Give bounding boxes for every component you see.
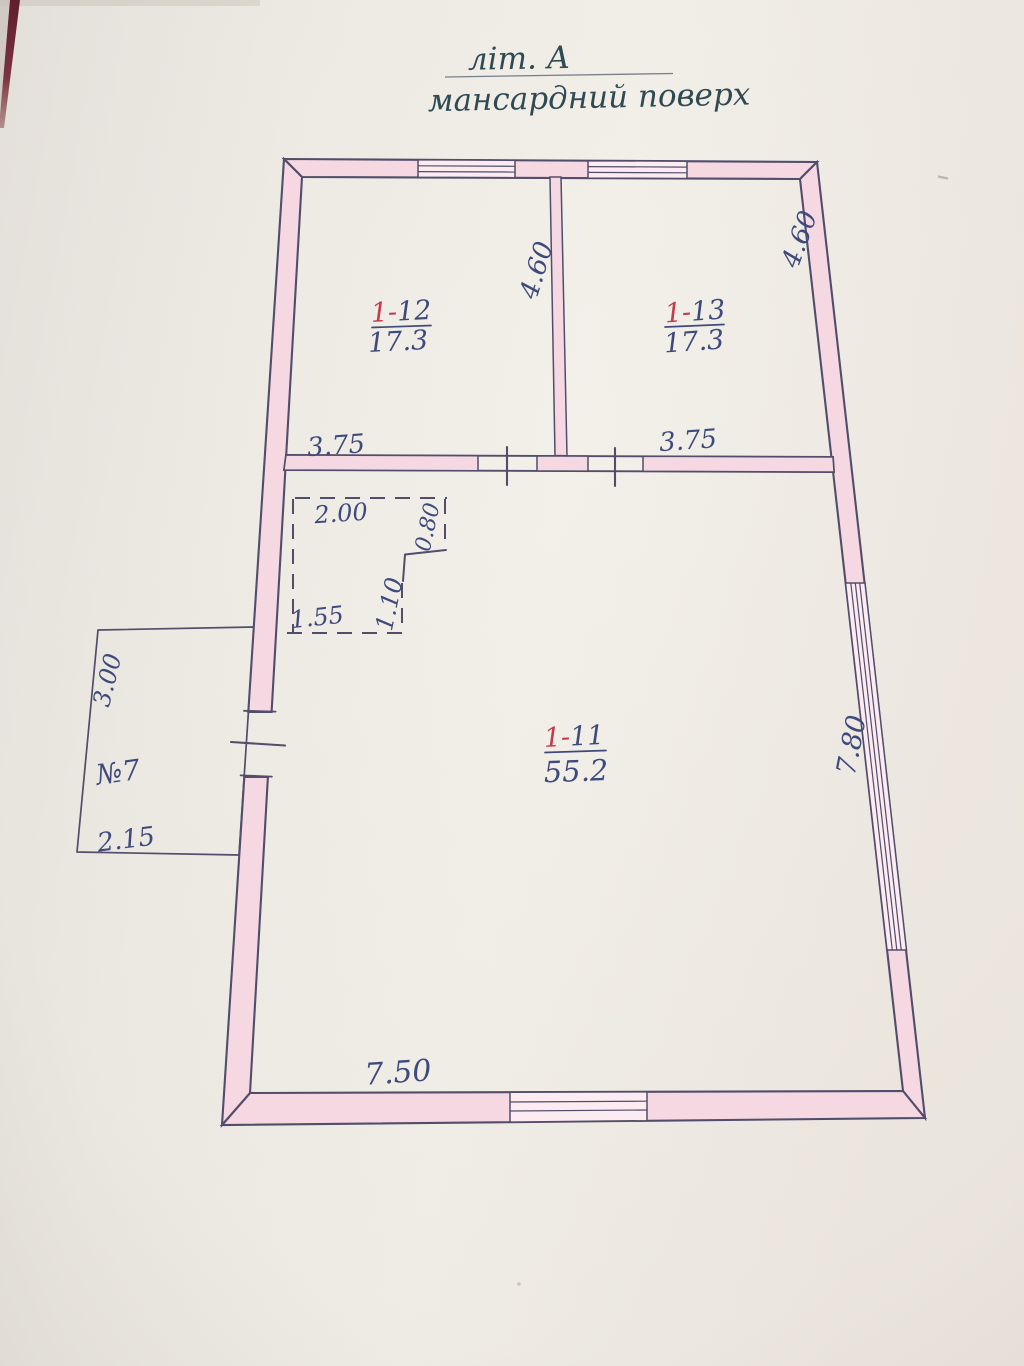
window-glass-line [510,1101,647,1102]
window-top-left [418,160,515,178]
room-number-prefix: 1- [664,297,692,330]
room-number: 12 [396,295,432,328]
opening-jamb-line [241,775,272,776]
room-1-11-area: 55.2 [543,753,609,789]
window-frame [418,160,515,178]
dim-room12-width: 3.75 [306,429,366,463]
top-exterior-wall [284,159,817,179]
window-bottom-wall [510,1092,647,1122]
window-glass-line [588,167,687,168]
window-frame [588,161,687,179]
opening-jamb-line [244,711,276,712]
photo-top-edge-shadow [0,0,260,6]
room-number-prefix: 1- [370,297,398,329]
room-1-11-number: 1-11 [543,720,605,754]
paper-speck [517,1282,521,1286]
building-letter-label: літ. А [468,40,571,78]
window-top-right [588,161,687,179]
window-glass-line [418,166,515,167]
annex-number-label: №7 [93,753,143,792]
room-1-12-area: 17.3 [367,325,429,359]
floor-title: мансардний поверх [427,76,751,119]
dim-niche-width: 2.00 [312,498,368,530]
dim-room13-width: 3.75 [658,424,718,458]
room-1-13-area: 17.3 [663,324,725,359]
partition-segment [643,456,834,472]
window-frame [510,1092,647,1122]
dim-niche-bottom: 1.55 [289,601,345,634]
partition-segment [537,456,588,471]
room-number: 11 [569,720,605,753]
room-number-prefix: 1- [543,722,571,754]
room-number: 13 [690,294,726,327]
dim-hall-width: 7.50 [364,1053,433,1093]
floor-plan-drawing: літ. А мансардний поверх [0,0,1024,1366]
room-1-12-number: 1-12 [370,295,432,329]
scanned-floor-plan-photo: літ. А мансардний поверх [0,0,1024,1366]
